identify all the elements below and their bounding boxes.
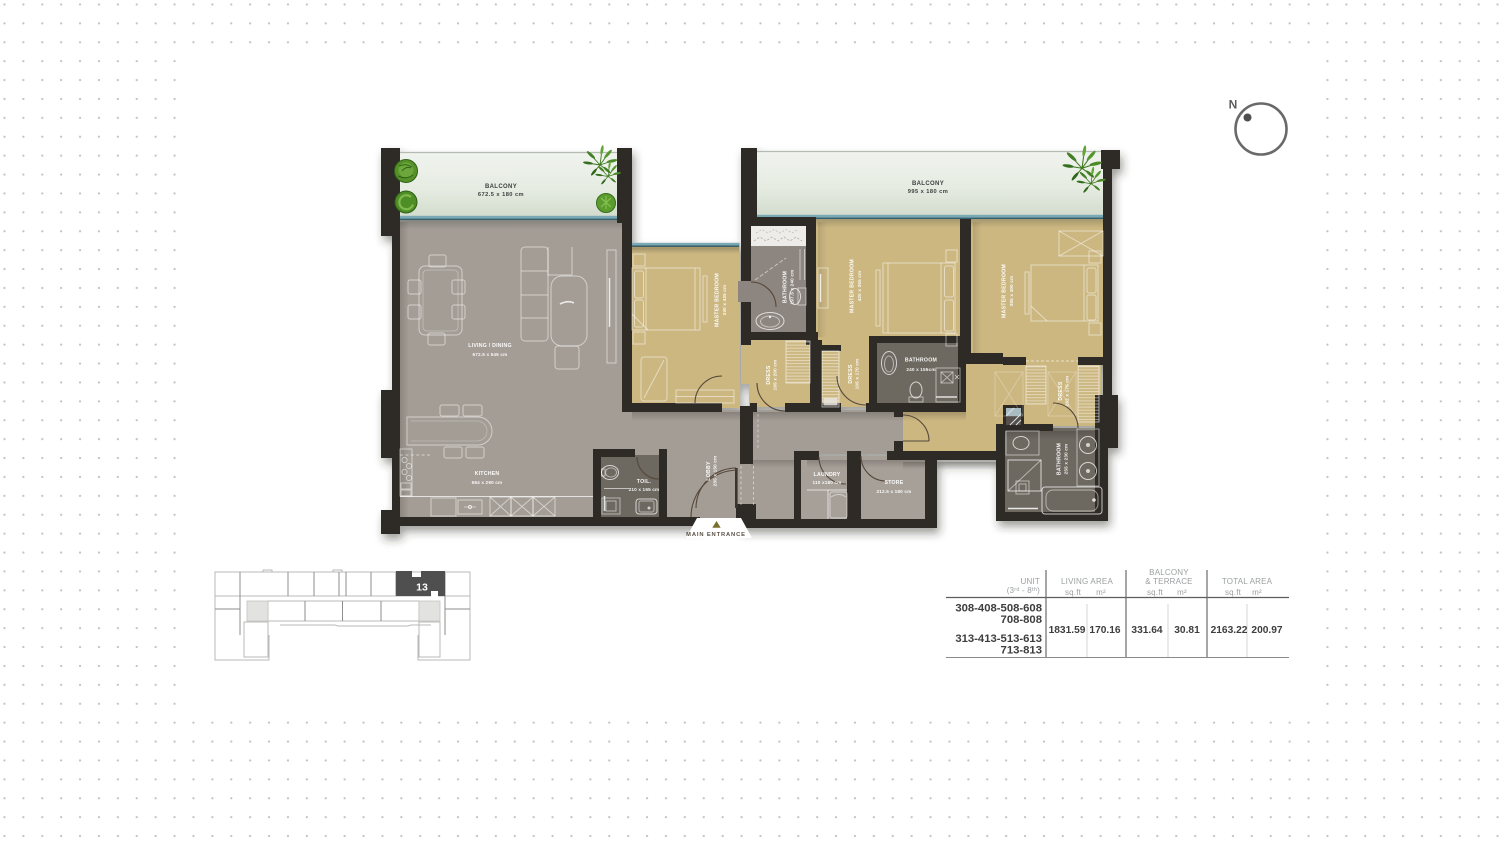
svg-text:331.64: 331.64	[1131, 625, 1162, 636]
svg-text:13: 13	[416, 582, 428, 594]
svg-text:BALCONY: BALCONY	[912, 181, 944, 187]
svg-text:DRESS: DRESS	[766, 365, 772, 384]
svg-text:1831.59: 1831.59	[1049, 625, 1086, 636]
svg-text:420 x 365 cm: 420 x 365 cm	[857, 271, 862, 302]
svg-text:584 x 290 cm: 584 x 290 cm	[472, 480, 503, 485]
svg-text:& TERRACE: & TERRACE	[1145, 577, 1192, 586]
svg-text:BATHROOM: BATHROOM	[1057, 443, 1063, 475]
svg-text:MASTER BEDROOM: MASTER BEDROOM	[1002, 264, 1008, 318]
svg-text:672.5 x 180 cm: 672.5 x 180 cm	[478, 192, 524, 198]
svg-text:MASTER BEDROOM: MASTER BEDROOM	[850, 259, 856, 313]
svg-text:200.97: 200.97	[1251, 625, 1282, 636]
svg-text:BATHROOM: BATHROOM	[783, 271, 789, 303]
svg-text:30.81: 30.81	[1174, 625, 1200, 636]
svg-text:LAUNDRY: LAUNDRY	[814, 472, 841, 478]
svg-text:N: N	[1229, 98, 1238, 112]
svg-text:165 x 200 cm: 165 x 200 cm	[773, 360, 778, 391]
svg-text:170.16: 170.16	[1089, 625, 1120, 636]
svg-text:LIVING / DINING: LIVING / DINING	[468, 343, 512, 349]
svg-text:210 x 165 cm: 210 x 165 cm	[629, 487, 660, 492]
svg-text:m²: m²	[1177, 588, 1187, 597]
svg-text:TOIL.: TOIL.	[637, 479, 652, 485]
svg-text:KITCHEN: KITCHEN	[475, 471, 500, 477]
svg-text:240 x 155cm: 240 x 155cm	[906, 367, 935, 372]
svg-text:110 x180 cm: 110 x180 cm	[812, 480, 841, 485]
svg-text:m²: m²	[1252, 588, 1262, 597]
svg-text:197.5 x 240 cm: 197.5 x 240 cm	[790, 270, 795, 305]
svg-text:713-813: 713-813	[1001, 645, 1042, 657]
svg-text:330 x 435 cm: 330 x 435 cm	[722, 285, 727, 316]
svg-text:105 x 170 cm: 105 x 170 cm	[855, 359, 860, 390]
svg-text:672.5 x 545 cm: 672.5 x 545 cm	[473, 352, 508, 357]
svg-text:212.5 x 180 cm: 212.5 x 180 cm	[877, 489, 912, 494]
svg-text:BATHROOM: BATHROOM	[905, 358, 937, 364]
svg-text:TOTAL AREA: TOTAL AREA	[1222, 577, 1273, 586]
svg-text:285 x 150 cm: 285 x 150 cm	[713, 456, 718, 487]
svg-text:2163.22: 2163.22	[1211, 625, 1248, 636]
svg-text:385 x 400 cm: 385 x 400 cm	[1009, 276, 1014, 307]
svg-text:STORE: STORE	[884, 480, 903, 486]
svg-text:BALCONY: BALCONY	[1149, 568, 1189, 577]
svg-text:(3ʳᵈ - 8ᵗʰ): (3ʳᵈ - 8ᵗʰ)	[1007, 586, 1040, 595]
svg-text:UNIT: UNIT	[1021, 577, 1040, 586]
svg-text:sq.ft: sq.ft	[1065, 588, 1082, 597]
svg-text:sq.ft: sq.ft	[1147, 588, 1164, 597]
svg-text:BALCONY: BALCONY	[485, 184, 517, 190]
svg-text:DRESS: DRESS	[848, 364, 854, 383]
svg-text:708-808: 708-808	[1001, 614, 1042, 626]
svg-text:LOBBY: LOBBY	[706, 461, 712, 481]
svg-text:313-413-513-613: 313-413-513-613	[955, 633, 1042, 645]
svg-text:MAIN ENTRANCE: MAIN ENTRANCE	[686, 532, 746, 538]
svg-text:sq.ft: sq.ft	[1225, 588, 1242, 597]
svg-text:262 x 175 cm: 262 x 175 cm	[1065, 376, 1070, 407]
svg-text:995 x 180 cm: 995 x 180 cm	[908, 189, 949, 195]
svg-text:MASTER BEDROOM: MASTER BEDROOM	[715, 273, 721, 327]
svg-text:255 x 230 cm: 255 x 230 cm	[1064, 444, 1069, 475]
svg-text:LIVING AREA: LIVING AREA	[1061, 577, 1113, 586]
svg-text:308-408-508-608: 308-408-508-608	[955, 603, 1042, 615]
svg-text:DRESS: DRESS	[1058, 381, 1064, 400]
svg-text:m²: m²	[1096, 588, 1106, 597]
